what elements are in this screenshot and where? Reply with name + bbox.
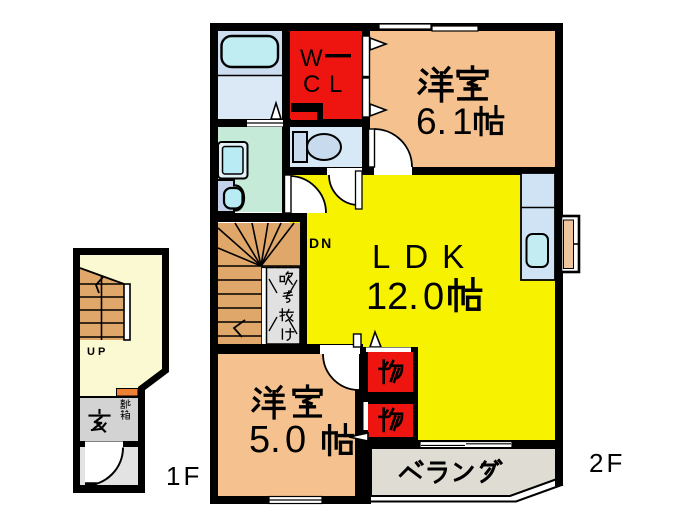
svg-text:1: 1 bbox=[452, 101, 473, 142]
svg-text:0: 0 bbox=[423, 276, 444, 318]
svg-text:1F: 1F bbox=[166, 461, 202, 491]
svg-text:5.: 5. bbox=[249, 419, 281, 461]
svg-text:LDK: LDK bbox=[372, 238, 478, 275]
svg-text:6.: 6. bbox=[416, 101, 447, 142]
svg-text:C: C bbox=[303, 71, 320, 98]
svg-text:L: L bbox=[329, 71, 342, 98]
svg-text:2F: 2F bbox=[589, 448, 625, 478]
svg-text:UP: UP bbox=[87, 346, 108, 358]
svg-text:0: 0 bbox=[285, 419, 306, 461]
svg-text:12.: 12. bbox=[366, 276, 419, 318]
svg-text:W: W bbox=[300, 45, 323, 72]
svg-text:DN: DN bbox=[309, 235, 333, 251]
